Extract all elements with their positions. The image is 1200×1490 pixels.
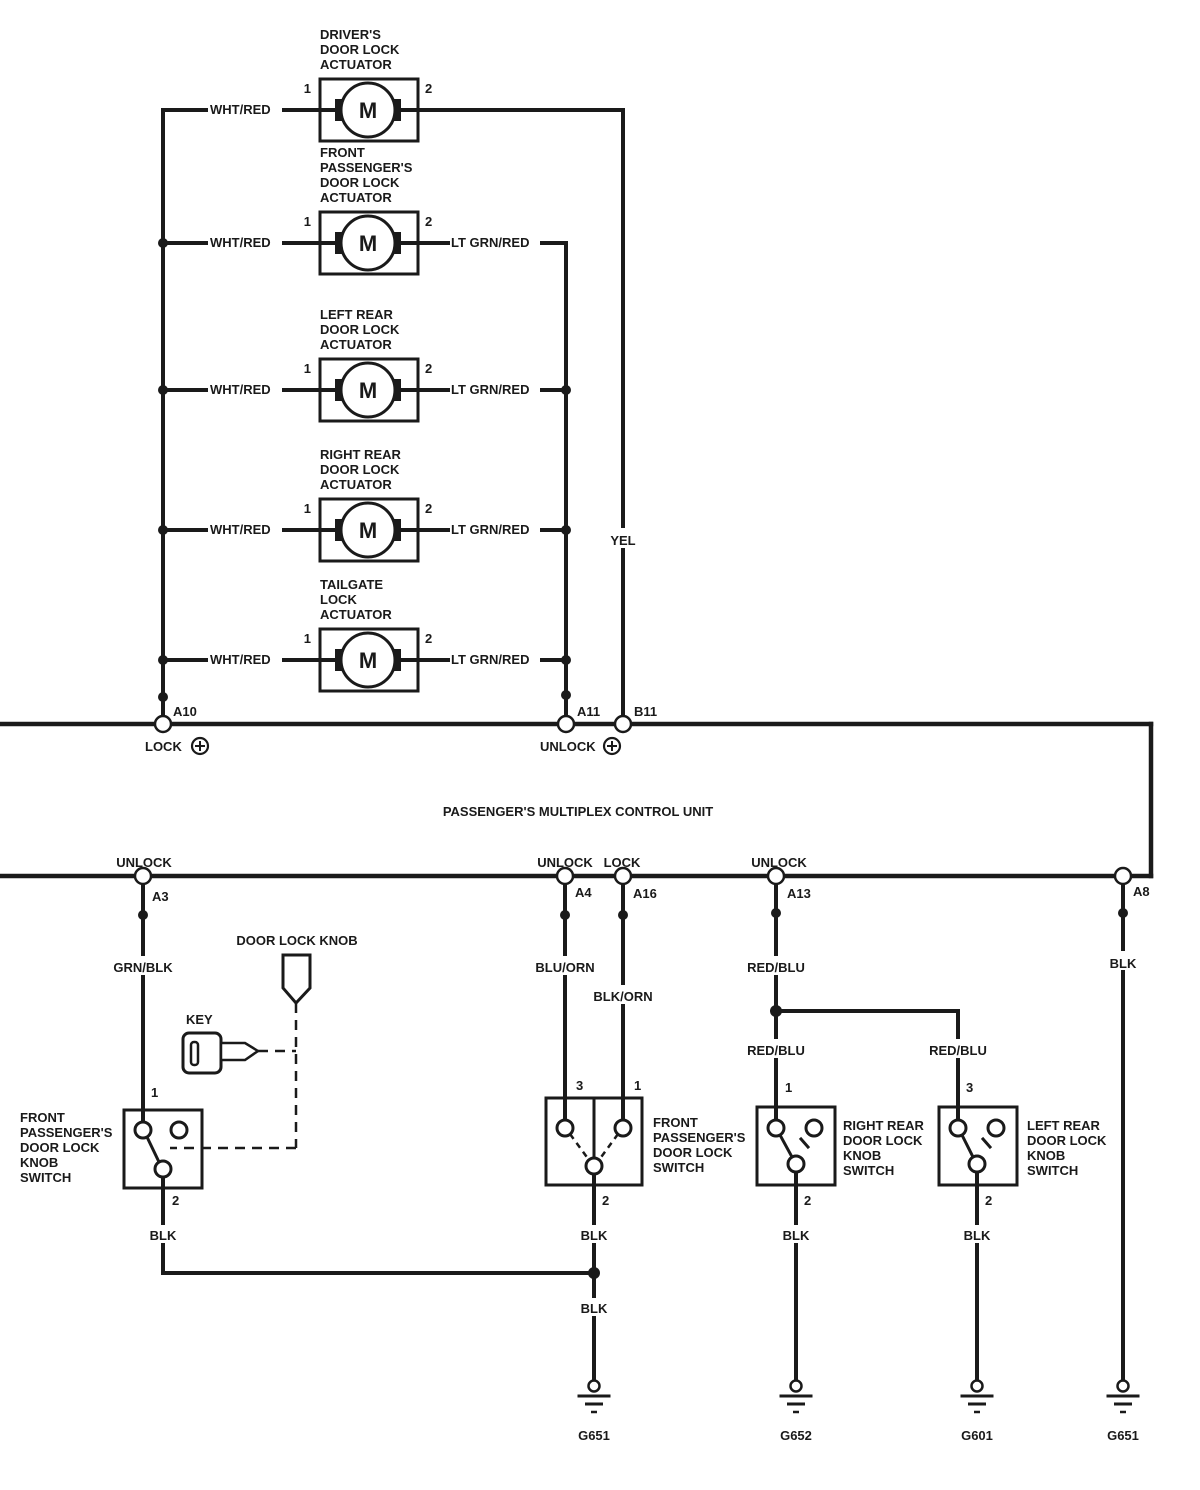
- wire-label-wht-red: WHT/RED: [210, 652, 271, 667]
- ground-terminal: [791, 1381, 802, 1392]
- actuator-drivers: DRIVER'S DOOR LOCK ACTUATOR M 1 2 WHT/RE…: [210, 27, 432, 141]
- pin-top: 3: [966, 1080, 973, 1095]
- wire-label-red-blu-1: RED/BLU: [747, 960, 805, 975]
- wire-label-wht-red: WHT/RED: [210, 382, 271, 397]
- actuator-label: DOOR LOCK: [320, 42, 400, 57]
- switch-throw-tick: [801, 1139, 808, 1147]
- switch-label: SWITCH: [843, 1163, 894, 1178]
- switch-label: RIGHT REAR: [843, 1118, 925, 1133]
- switch-label: DOOR LOCK: [653, 1145, 733, 1160]
- wire-label-wht-red: WHT/RED: [210, 235, 271, 250]
- switch-terminal: [950, 1120, 966, 1136]
- connector-a3: [135, 868, 151, 884]
- motor-letter: M: [359, 378, 377, 403]
- top-connectors: A10 LOCK A11 UNLOCK B11: [145, 704, 657, 754]
- fp-knob-switch: FRONT PASSENGER'S DOOR LOCK KNOB SWITCH …: [20, 1085, 202, 1208]
- wiring-diagram: DRIVER'S DOOR LOCK ACTUATOR M 1 2 WHT/RE…: [0, 0, 1200, 1490]
- switch-label: KNOB: [843, 1148, 881, 1163]
- key-label: KEY: [186, 1012, 213, 1027]
- key: KEY: [183, 1012, 258, 1073]
- pin-1: 1: [304, 501, 311, 516]
- connector-b11: [615, 716, 631, 732]
- connector-b11-label: B11: [634, 704, 657, 719]
- actuator-label: ACTUATOR: [320, 190, 392, 205]
- wire-label-blu-orn: BLU/ORN: [535, 960, 594, 975]
- wire-label-lt-grn-red: LT GRN/RED: [451, 382, 529, 397]
- ground-label: G652: [780, 1428, 812, 1443]
- wire-label-blk-fp-lock: BLK: [581, 1228, 608, 1243]
- door-lock-knob-label: DOOR LOCK KNOB: [236, 933, 357, 948]
- actuator-label: LEFT REAR: [320, 307, 394, 322]
- switch-label: SWITCH: [1027, 1163, 1078, 1178]
- connector-a3-label: A3: [152, 889, 169, 904]
- junction-dots: [138, 238, 1128, 1279]
- pin-bottom: 2: [172, 1193, 179, 1208]
- pin-bottom: 2: [602, 1193, 609, 1208]
- wire-label-blk-fp-knob: BLK: [150, 1228, 177, 1243]
- key-blade: [221, 1043, 258, 1060]
- ground-g601: G601: [961, 1381, 993, 1444]
- motor-letter: M: [359, 231, 377, 256]
- wire-label-blk-lr: BLK: [964, 1228, 991, 1243]
- pin-1: 1: [304, 631, 311, 646]
- pin-2: 2: [425, 81, 432, 96]
- connector-a4: [557, 868, 573, 884]
- switch-terminal: [615, 1120, 631, 1136]
- connector-a16: [615, 868, 631, 884]
- connector-a8-label: A8: [1133, 884, 1150, 899]
- connector-a10: [155, 716, 171, 732]
- door-lock-knob-icon: [283, 955, 310, 1003]
- circled-plus-icon: [604, 738, 620, 754]
- actuator-label: ACTUATOR: [320, 337, 392, 352]
- wire-label-red-blu-2: RED/BLU: [747, 1043, 805, 1058]
- switch-label: PASSENGER'S: [20, 1125, 113, 1140]
- pin-bottom: 2: [985, 1193, 992, 1208]
- connector-a16-label: A16: [633, 886, 657, 901]
- switch-contact-arm: [780, 1135, 792, 1157]
- circled-plus-icon: [192, 738, 208, 754]
- wiring-diagram-page: DRIVER'S DOOR LOCK ACTUATOR M 1 2 WHT/RE…: [0, 0, 1200, 1490]
- actuator-label: FRONT: [320, 145, 365, 160]
- switch-throw-left: [570, 1134, 589, 1160]
- switch-label: FRONT: [20, 1110, 65, 1125]
- wire-label-lt-grn-red: LT GRN/RED: [451, 235, 529, 250]
- actuator-label: ACTUATOR: [320, 607, 392, 622]
- switch-terminal: [135, 1122, 151, 1138]
- connector-a16-function: LOCK: [604, 855, 641, 870]
- connector-a11: [558, 716, 574, 732]
- pin-bottom: 2: [804, 1193, 811, 1208]
- lr-knob-switch: 3 2 LEFT REAR DOOR LOCK KNOB SWITCH: [939, 1080, 1107, 1208]
- ground-label: G601: [961, 1428, 993, 1443]
- ground-terminal: [589, 1381, 600, 1392]
- motor-letter: M: [359, 648, 377, 673]
- switch-label: KNOB: [1027, 1148, 1065, 1163]
- switch-terminal: [768, 1120, 784, 1136]
- switch-terminal: [806, 1120, 822, 1136]
- connector-a10-label: A10: [173, 704, 197, 719]
- actuator-front-passenger: FRONT PASSENGER'S DOOR LOCK ACTUATOR M 1…: [210, 145, 529, 274]
- actuator-label: DRIVER'S: [320, 27, 381, 42]
- wire-label-lt-grn-red: LT GRN/RED: [451, 652, 529, 667]
- wire-label-blk-fp-lock-2: BLK: [581, 1301, 608, 1316]
- switch-label: KNOB: [20, 1155, 58, 1170]
- wire-label-red-blu-3: RED/BLU: [929, 1043, 987, 1058]
- switch-label: DOOR LOCK: [1027, 1133, 1107, 1148]
- pin-top: 1: [151, 1085, 158, 1100]
- wire-label-wht-red: WHT/RED: [210, 522, 271, 537]
- lock-function-label: LOCK: [145, 739, 182, 754]
- actuator-label: PASSENGER'S: [320, 160, 413, 175]
- switch-terminal: [155, 1161, 171, 1177]
- pin-2: 2: [425, 631, 432, 646]
- pin-top: 1: [785, 1080, 792, 1095]
- door-lock-knob: DOOR LOCK KNOB: [236, 933, 357, 1003]
- motor-letter: M: [359, 518, 377, 543]
- ground-g651-b: G651: [1107, 1381, 1139, 1444]
- wire-label-blk-a8: BLK: [1110, 956, 1137, 971]
- actuator-right-rear: RIGHT REAR DOOR LOCK ACTUATOR M 1 2 WHT/…: [210, 447, 529, 561]
- actuator-label: DOOR LOCK: [320, 175, 400, 190]
- ground-label: G651: [578, 1428, 610, 1443]
- switch-label: PASSENGER'S: [653, 1130, 746, 1145]
- actuator-label: RIGHT REAR: [320, 447, 402, 462]
- connector-a4-function: UNLOCK: [537, 855, 593, 870]
- switch-label: SWITCH: [20, 1170, 71, 1185]
- pin-2: 2: [425, 501, 432, 516]
- actuator-label: TAILGATE: [320, 577, 383, 592]
- switch-terminal: [988, 1120, 1004, 1136]
- connector-a13: [768, 868, 784, 884]
- connector-a4-label: A4: [575, 885, 592, 900]
- rr-knob-switch: 1 2 RIGHT REAR DOOR LOCK KNOB SWITCH: [757, 1080, 925, 1208]
- connector-a11-label: A11: [577, 704, 600, 719]
- connector-a3-function: UNLOCK: [116, 855, 172, 870]
- pin-1: 1: [304, 361, 311, 376]
- connector-a8: [1115, 868, 1131, 884]
- actuator-label: ACTUATOR: [320, 477, 392, 492]
- pin-1: 1: [304, 81, 311, 96]
- wire-label-wht-red: WHT/RED: [210, 102, 271, 117]
- connector-a13-function: UNLOCK: [751, 855, 807, 870]
- switch-label: LEFT REAR: [1027, 1118, 1101, 1133]
- pin-top-left: 3: [576, 1078, 583, 1093]
- switch-terminal: [788, 1156, 804, 1172]
- motor-letter: M: [359, 98, 377, 123]
- key-icon: [183, 1033, 221, 1073]
- switch-throw-right: [599, 1134, 618, 1160]
- switch-terminal: [557, 1120, 573, 1136]
- ground-label: G651: [1107, 1428, 1139, 1443]
- actuator-label: LOCK: [320, 592, 357, 607]
- pin-2: 2: [425, 214, 432, 229]
- actuator-label: DOOR LOCK: [320, 462, 400, 477]
- connector-a13-label: A13: [787, 886, 811, 901]
- wire-label-blk-rr: BLK: [783, 1228, 810, 1243]
- pin-top-right: 1: [634, 1078, 641, 1093]
- switch-label: DOOR LOCK: [843, 1133, 923, 1148]
- switch-throw-tick: [983, 1139, 990, 1147]
- switch-contact-arm: [962, 1135, 973, 1157]
- control-unit-title: PASSENGER'S MULTIPLEX CONTROL UNIT: [443, 804, 713, 819]
- pin-2: 2: [425, 361, 432, 376]
- ground-g651-a: G651: [578, 1381, 610, 1444]
- pin-1: 1: [304, 214, 311, 229]
- wire-label-grn-blk: GRN/BLK: [113, 960, 173, 975]
- actuator-label: ACTUATOR: [320, 57, 392, 72]
- switch-label: FRONT: [653, 1115, 698, 1130]
- fp-lock-switch: 3 1 2 FRONT PASSENGER'S DOOR LOCK SWITCH: [546, 1078, 746, 1208]
- switch-terminal: [586, 1158, 602, 1174]
- unlock-function-label: UNLOCK: [540, 739, 596, 754]
- switch-contact-arm: [147, 1137, 159, 1162]
- ground-terminal: [1118, 1381, 1129, 1392]
- wire-label-blk-orn: BLK/ORN: [593, 989, 652, 1004]
- switch-terminal: [969, 1156, 985, 1172]
- wire-label-lt-grn-red: LT GRN/RED: [451, 522, 529, 537]
- ground-terminal: [972, 1381, 983, 1392]
- switch-label: SWITCH: [653, 1160, 704, 1175]
- actuator-tailgate: TAILGATE LOCK ACTUATOR M 1 2 WHT/RED LT …: [210, 577, 529, 691]
- bottom-connectors: UNLOCK A3 UNLOCK A4 LOCK A16 UNLOCK A13 …: [116, 855, 1149, 904]
- actuator-left-rear: LEFT REAR DOOR LOCK ACTUATOR M 1 2 WHT/R…: [210, 307, 529, 421]
- switch-terminal: [171, 1122, 187, 1138]
- wire-label-yel: YEL: [610, 533, 635, 548]
- actuator-label: DOOR LOCK: [320, 322, 400, 337]
- switch-label: DOOR LOCK: [20, 1140, 100, 1155]
- ground-g652: G652: [780, 1381, 812, 1444]
